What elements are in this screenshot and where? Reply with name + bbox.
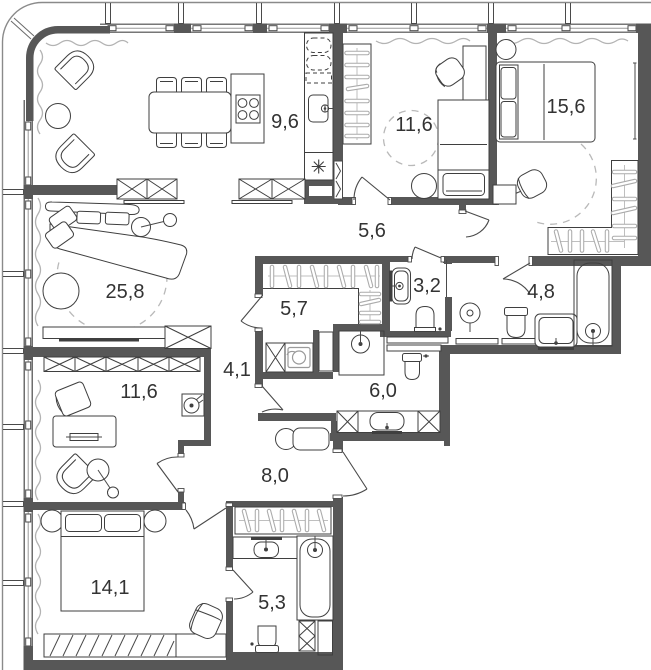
svg-text:11,6: 11,6 bbox=[395, 114, 432, 136]
svg-text:4,1: 4,1 bbox=[223, 359, 251, 381]
svg-text:14,1: 14,1 bbox=[91, 577, 130, 599]
svg-text:6,0: 6,0 bbox=[369, 380, 397, 402]
svg-text:5,3: 5,3 bbox=[258, 592, 286, 614]
svg-text:11,6: 11,6 bbox=[120, 381, 157, 403]
svg-text:15,6: 15,6 bbox=[547, 96, 586, 118]
svg-text:4,8: 4,8 bbox=[527, 281, 555, 303]
svg-text:5,7: 5,7 bbox=[280, 298, 308, 320]
svg-text:5,6: 5,6 bbox=[358, 220, 386, 242]
svg-text:3,2: 3,2 bbox=[413, 275, 441, 297]
svg-text:8,0: 8,0 bbox=[261, 465, 289, 487]
svg-text:9,6: 9,6 bbox=[271, 111, 299, 133]
svg-text:25,8: 25,8 bbox=[106, 281, 145, 303]
